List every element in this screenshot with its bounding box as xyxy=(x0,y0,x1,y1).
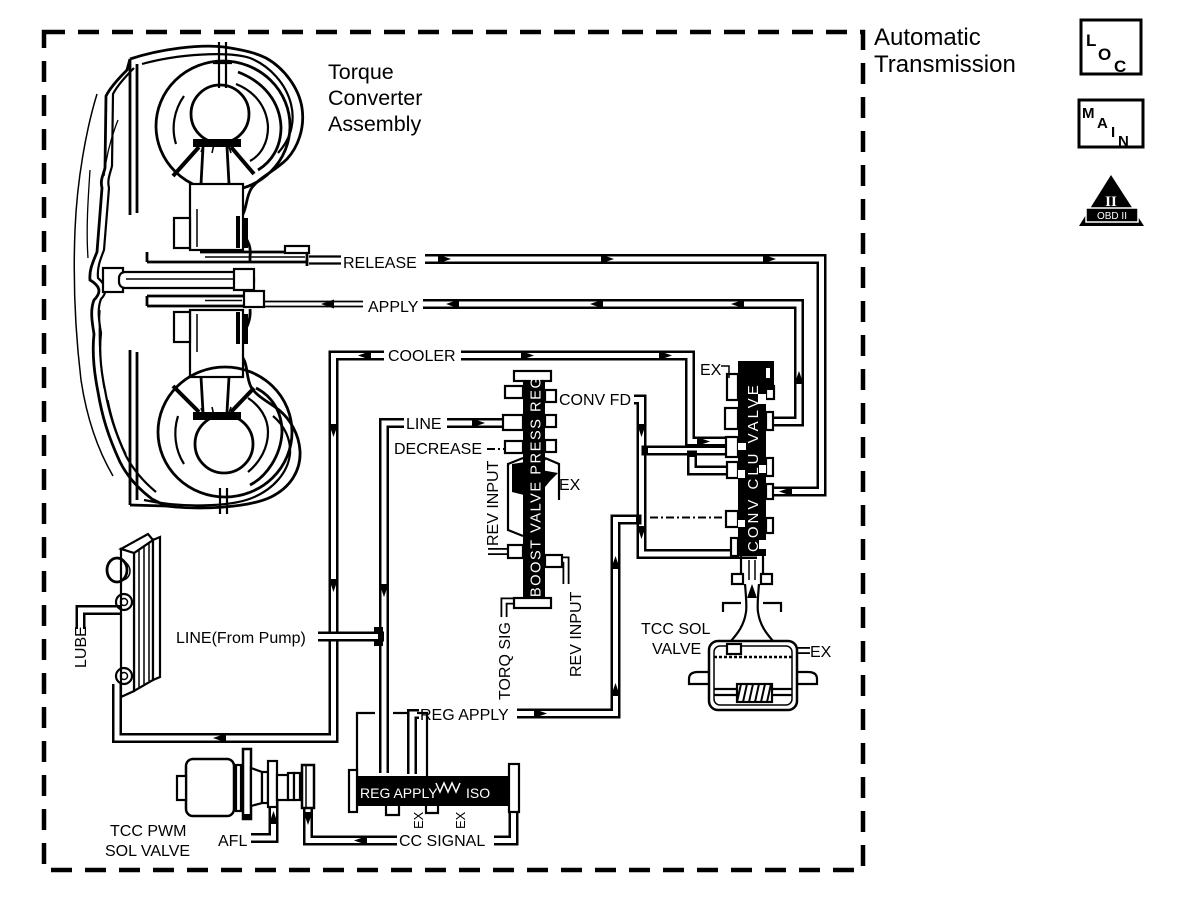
svg-text:EX: EX xyxy=(453,811,468,829)
svg-text:Transmission: Transmission xyxy=(874,51,1016,78)
svg-text:REV INPUT: REV INPUT xyxy=(485,460,502,546)
svg-text:TCC PWM: TCC PWM xyxy=(110,823,186,840)
svg-text:EX: EX xyxy=(810,644,832,661)
svg-text:LINE(From Pump): LINE(From Pump) xyxy=(176,630,306,647)
svg-text:N: N xyxy=(1118,133,1129,150)
svg-text:DECREASE: DECREASE xyxy=(394,441,482,458)
svg-text:LUBE: LUBE xyxy=(73,626,90,668)
svg-text:CONV CLU VALVE: CONV CLU VALVE xyxy=(745,382,762,552)
svg-text:CONV FD: CONV FD xyxy=(559,392,631,409)
svg-text:REG APPLY: REG APPLY xyxy=(420,707,509,724)
svg-text:Automatic: Automatic xyxy=(874,24,981,51)
svg-text:CC SIGNAL: CC SIGNAL xyxy=(399,833,485,850)
svg-text:REG APPLY: REG APPLY xyxy=(360,785,438,801)
svg-text:APPLY: APPLY xyxy=(368,299,419,316)
svg-text:A: A xyxy=(1097,115,1108,132)
svg-text:RELEASE: RELEASE xyxy=(343,255,417,272)
svg-text:Converter: Converter xyxy=(328,86,422,110)
svg-text:BOOST VALVE PRESS REG: BOOST VALVE PRESS REG xyxy=(529,376,545,597)
svg-text:O: O xyxy=(1098,45,1111,64)
svg-text:C: C xyxy=(1114,57,1126,76)
svg-text:VALVE: VALVE xyxy=(652,641,701,658)
svg-text:SOL VALVE: SOL VALVE xyxy=(105,843,190,860)
svg-text:I: I xyxy=(1111,124,1115,141)
svg-text:TCC SOL: TCC SOL xyxy=(641,621,710,638)
svg-text:REV INPUT: REV INPUT xyxy=(568,591,585,677)
svg-text:TORQ SIG: TORQ SIG xyxy=(497,622,514,700)
svg-text:EX: EX xyxy=(700,362,722,379)
svg-text:Torque: Torque xyxy=(328,60,394,84)
svg-text:EX: EX xyxy=(411,811,426,829)
svg-text:M: M xyxy=(1082,105,1095,122)
svg-text:ISO: ISO xyxy=(466,785,490,801)
svg-text:OBD II: OBD II xyxy=(1097,211,1127,222)
svg-text:COOLER: COOLER xyxy=(388,348,456,365)
svg-text:LINE: LINE xyxy=(406,416,442,433)
svg-text:Assembly: Assembly xyxy=(328,112,421,136)
svg-text:L: L xyxy=(1086,31,1096,50)
svg-text:AFL: AFL xyxy=(218,833,247,850)
svg-text:EX: EX xyxy=(559,477,581,494)
